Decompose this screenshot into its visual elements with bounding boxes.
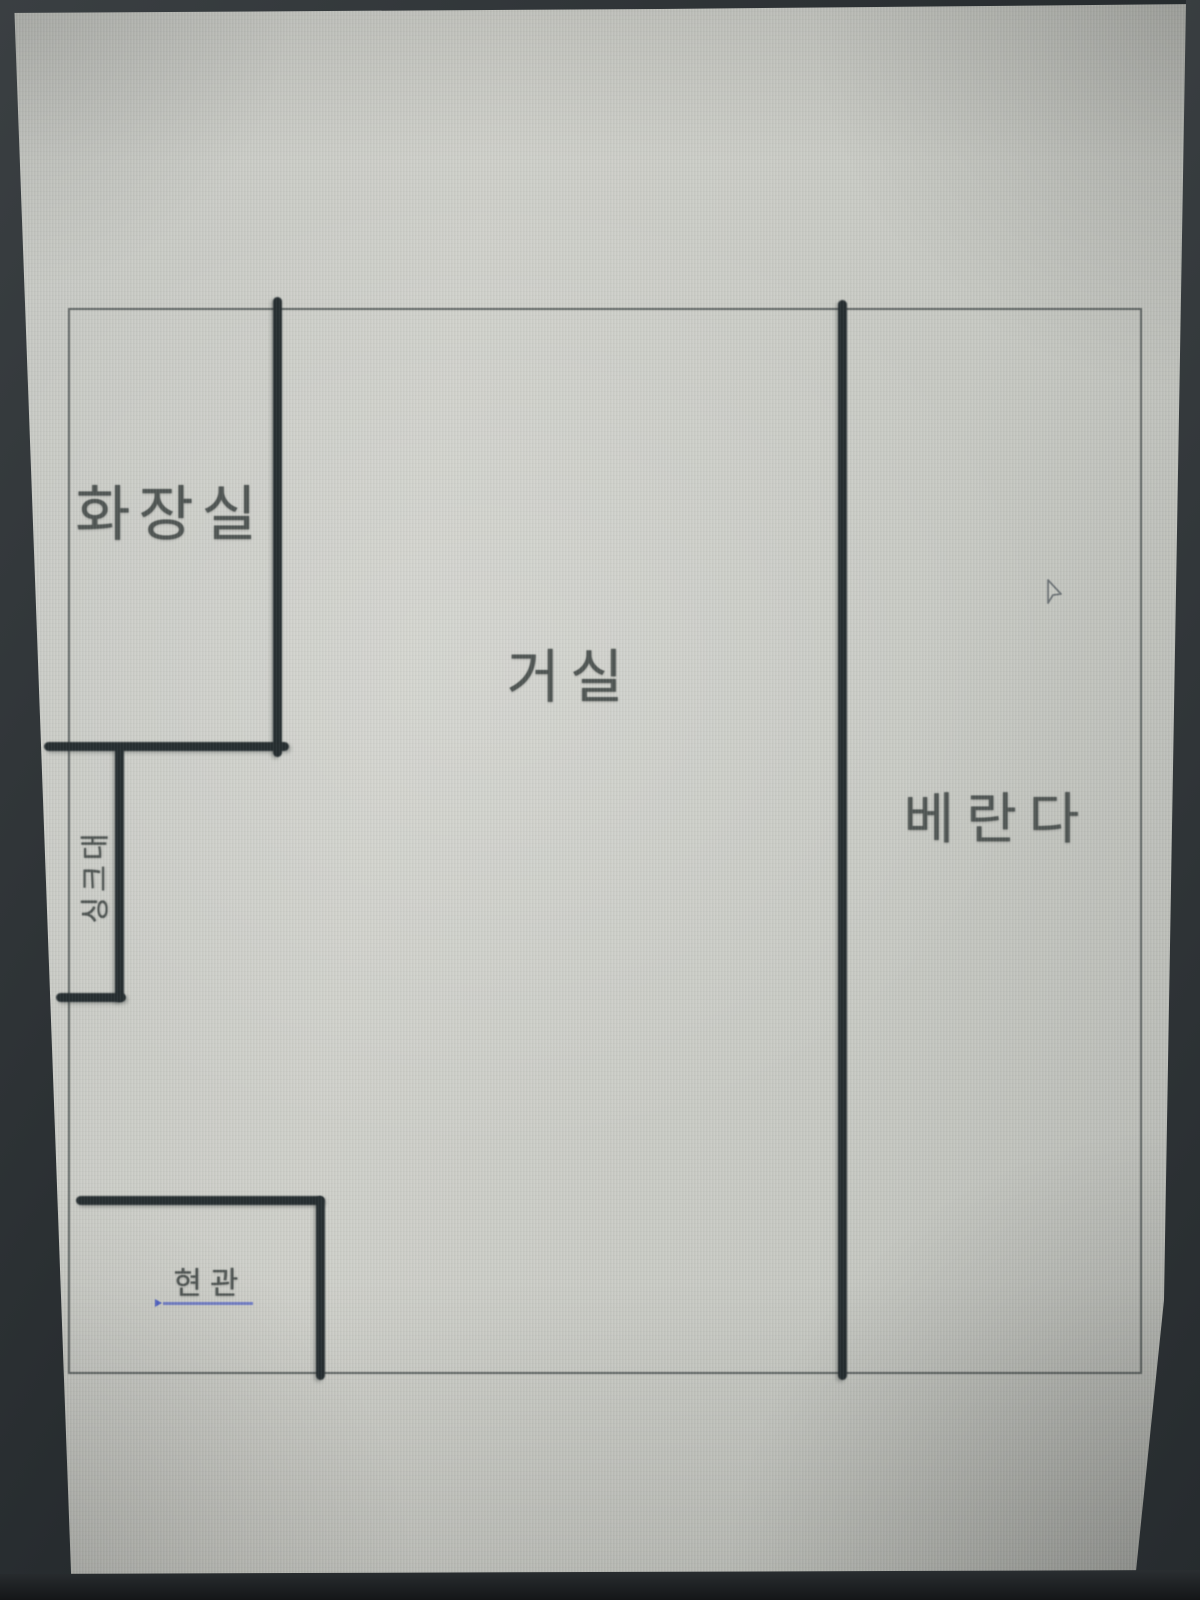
entrance-underline <box>163 1302 253 1305</box>
room-label-sink: 싱크대 <box>72 828 114 923</box>
wall-bathroom-bottom <box>44 742 289 751</box>
monitor-photo: { "window": { "type": "photographed-moni… <box>0 0 1200 1600</box>
mouse-pointer-icon <box>1043 579 1065 607</box>
wall-entrance-top <box>76 1196 324 1205</box>
room-label-bathroom: 화장실 <box>58 466 282 553</box>
drawing-canvas[interactable]: 화장실 싱크대 현관 거실 베란다 <box>0 0 1200 1600</box>
wall-veranda-divider <box>838 300 847 1380</box>
room-label-veranda: 베란다 <box>855 774 1140 854</box>
monitor-screen: 화장실 싱크대 현관 거실 베란다 <box>0 0 1200 1600</box>
room-label-entrance: 현관 <box>160 1258 260 1303</box>
wall-sink-right <box>115 746 124 1002</box>
wall-sink-bottom <box>56 993 126 1002</box>
underline-start-marker-icon <box>155 1299 162 1307</box>
room-label-living-room: 거실 <box>430 630 710 714</box>
wall-entrance-right <box>316 1196 325 1380</box>
